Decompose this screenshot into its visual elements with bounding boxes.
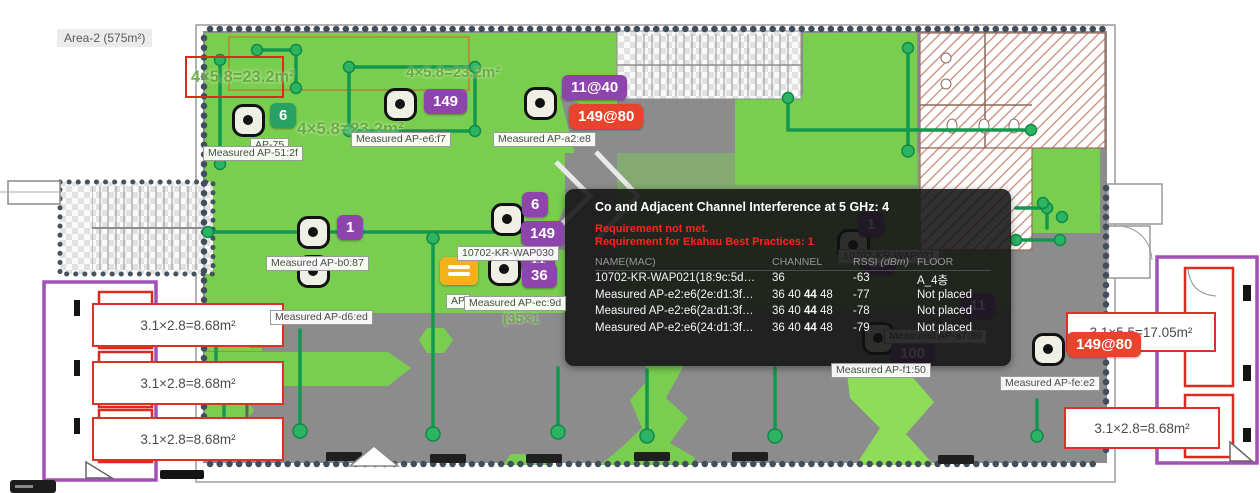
tooltip-cell: -63 — [853, 272, 870, 284]
tooltip-cell: -77 — [853, 289, 870, 301]
channel-badge[interactable]: 149 — [424, 89, 467, 114]
ap-label[interactable]: Measured AP-e6:f7 — [351, 132, 451, 147]
channel-badge[interactable]: 149@80 — [1067, 332, 1141, 357]
channel-badge[interactable]: 149 — [521, 221, 564, 246]
dimension-text: 4×5.8=23.2m² — [406, 64, 500, 81]
tooltip-table-row: Measured AP-e2:e6(2a:d1:3f…36 40 44 48-7… — [595, 304, 991, 321]
note-comment-icon[interactable] — [440, 257, 478, 285]
ap-label[interactable]: Measured AP-f1:50 — [831, 363, 931, 378]
channel-badge[interactable]: 149@80 — [569, 104, 643, 129]
ap-marker[interactable] — [232, 104, 265, 137]
tooltip-cell: A_4층 — [917, 272, 948, 288]
tooltip-table-row: Measured AP-e2:e6(2e:d1:3f…36 40 44 48-7… — [595, 288, 991, 305]
ap-label[interactable]: Measured AP-51:2f — [203, 146, 303, 161]
tooltip-table-rows: 10702-KR-WAP021(18:9c:5d…36-63A_4층Measur… — [595, 271, 991, 337]
ap-label[interactable]: Measured AP-ec:9d — [464, 296, 566, 311]
tooltip-table-row: 10702-KR-WAP021(18:9c:5d…36-63A_4층 — [595, 271, 991, 288]
dimension-box: 3.1×2.8=8.68m² — [1064, 407, 1220, 449]
tooltip-column-header: NAME(MAC) — [595, 256, 767, 268]
ap-label[interactable]: Measured AP-fe:e2 — [1000, 376, 1100, 391]
tooltip-title: Co and Adjacent Channel Interference at … — [595, 200, 991, 214]
tooltip-column-header: FLOOR — [917, 256, 953, 268]
tooltip-column-header: RSSI (dBm) — [853, 256, 909, 268]
channel-badge[interactable]: 6 — [270, 103, 296, 128]
dimension-text: 4×5.8=23.2m² — [191, 68, 295, 87]
tooltip-cell: -78 — [853, 305, 870, 317]
dimension-box: 3.1×2.8=8.68m² — [92, 417, 284, 461]
ap-marker[interactable] — [1032, 333, 1065, 366]
tooltip-warning-best-practices: Requirement for Ekahau Best Practices: 1 — [595, 236, 991, 249]
dimension-text: (35×1 — [503, 310, 539, 326]
tooltip-cell: Not placed — [917, 305, 972, 317]
tooltip-cell: -79 — [853, 322, 870, 334]
ap-label[interactable]: Measured AP-d6:ed — [270, 310, 373, 325]
tooltip-warning-not-met: Requirement not met. — [595, 223, 991, 236]
interference-tooltip: Co and Adjacent Channel Interference at … — [565, 189, 1011, 366]
ap-label[interactable]: Measured AP-b0:87 — [266, 256, 369, 271]
tooltip-cell: 36 40 44 48 — [772, 305, 833, 317]
tooltip-cell: Not placed — [917, 322, 972, 334]
channel-badge[interactable]: 36 — [522, 263, 557, 288]
channel-badge[interactable]: 1 — [337, 215, 363, 240]
dimension-box: 3.1×2.8=8.68m² — [92, 361, 284, 405]
note-line-decoration — [448, 272, 470, 276]
tooltip-cell: Measured AP-e2:e6(24:d1:3f… — [595, 322, 767, 334]
area-label: Area-2 (575m²) — [57, 29, 152, 47]
tooltip-column-header: CHANNEL — [772, 256, 822, 268]
ekahau-map-view: 1361001110702-KR-WAP021Measured AP-a7:89… — [0, 0, 1260, 493]
tooltip-table-row: Measured AP-e2:e6(24:d1:3f…36 40 44 48-7… — [595, 321, 991, 338]
tooltip-cell: 36 40 44 48 — [772, 289, 833, 301]
channel-badge[interactable]: 11@40 — [562, 75, 627, 100]
note-line-decoration — [448, 265, 470, 269]
tooltip-cell: 10702-KR-WAP021(18:9c:5d… — [595, 272, 767, 284]
ap-marker[interactable] — [297, 216, 330, 249]
ap-marker[interactable] — [384, 88, 417, 121]
tooltip-cell: 36 — [772, 272, 785, 284]
channel-badge[interactable]: 6 — [522, 192, 548, 217]
collapsed-panel-handle[interactable] — [10, 480, 56, 493]
ap-marker[interactable] — [491, 203, 524, 236]
ap-marker[interactable] — [524, 87, 557, 120]
tooltip-table-header: NAME(MAC)CHANNELRSSI (dBm)FLOOR — [595, 255, 991, 271]
tooltip-cell: 36 40 44 48 — [772, 322, 833, 334]
tooltip-cell: Not placed — [917, 289, 972, 301]
tooltip-cell: Measured AP-e2:e6(2a:d1:3f… — [595, 305, 767, 317]
dimension-box: 3.1×2.8=8.68m² — [92, 303, 284, 347]
tooltip-cell: Measured AP-e2:e6(2e:d1:3f… — [595, 289, 767, 301]
ap-label[interactable]: Measured AP-a2:e8 — [493, 132, 596, 147]
ap-label[interactable]: 10702-KR-WAP030 — [457, 246, 559, 261]
